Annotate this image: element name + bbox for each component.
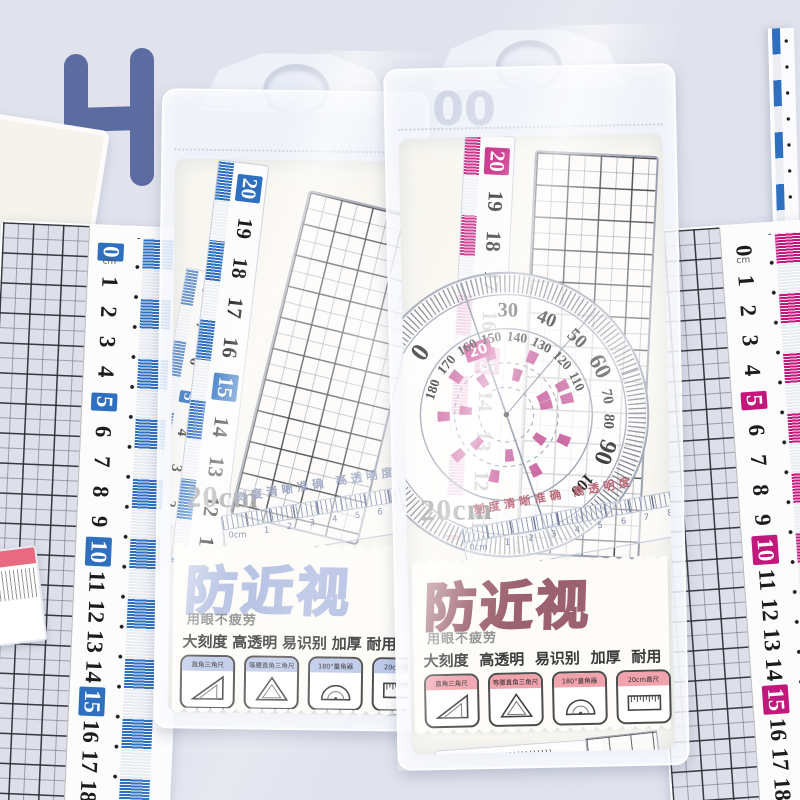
tick-label: 0cm <box>228 530 247 540</box>
svg-text:140: 140 <box>506 328 528 346</box>
ruler-number: 15 <box>752 683 798 716</box>
tick-label: 8 <box>667 508 673 518</box>
slogan-text: 用眼不疲劳 <box>187 609 257 629</box>
ruler-unit: cm <box>102 257 116 268</box>
protractor-icon <box>554 687 606 722</box>
tick-label: 2 <box>528 533 534 543</box>
svg-text:70: 70 <box>598 388 616 406</box>
ruler-number: 14 <box>70 656 115 688</box>
feature-item: 耐用 <box>366 633 396 654</box>
ruler-number: 1 <box>87 266 132 298</box>
item-box: 等腰直角三角尺 <box>488 672 544 727</box>
ruler-unit: cm <box>736 255 750 266</box>
item-box: 180°量角器 <box>308 656 364 711</box>
item-label: 直角三角尺 <box>426 675 477 690</box>
ruler-number: 11 <box>74 566 119 598</box>
backing-card: 8765432 20191817161514131211 20cm 刻度清晰准确… <box>167 158 415 715</box>
ruler-number: 18 <box>220 246 258 290</box>
ruler-number: 3 <box>727 324 773 357</box>
feature-item: 易识别 <box>535 647 580 669</box>
tick-label: 7 <box>644 513 650 523</box>
ruler-number: 7 <box>79 446 124 478</box>
ruler-number: 19 <box>477 180 513 222</box>
red-label-bar <box>0 547 36 569</box>
feature-item: 加厚 <box>332 633 362 654</box>
item-label: 20cm直尺 <box>618 671 669 686</box>
slogan-text: 用眼不疲劳 <box>427 627 497 647</box>
item-label: 180°量角器 <box>554 673 605 688</box>
item-box: 20cm直尺 <box>616 669 672 724</box>
item-box: 直角三角尺 <box>180 654 236 709</box>
feature-item: 高透明 <box>479 648 524 670</box>
feature-item: 耐用 <box>631 645 661 667</box>
ruler-number: 1 <box>723 264 769 297</box>
right-triangle-icon <box>182 670 233 705</box>
ruler-number: 11 <box>744 563 790 596</box>
ruler-number: 5 <box>82 386 127 418</box>
plastic-bag: 20191817161514131211 20 <box>383 63 690 771</box>
feature-item: 大刻度 <box>182 630 227 652</box>
ruler-number: 17 <box>66 745 111 777</box>
tick-label: 0cm <box>469 543 488 554</box>
ruler-icon <box>618 685 670 720</box>
feature-item: 加厚 <box>590 646 620 668</box>
heat-seal-line <box>174 148 417 153</box>
svg-text:80: 80 <box>600 413 617 429</box>
ruler-number: 2 <box>86 296 131 328</box>
item-label: 等腰直角三角尺 <box>490 674 541 689</box>
isosceles-triangle-icon <box>246 671 297 706</box>
ruler-number: 16 <box>67 715 112 747</box>
right-triangle-icon <box>426 689 478 724</box>
tick-label: 3 <box>551 529 557 539</box>
protractor-icon <box>310 672 361 707</box>
tick-label: 5 <box>354 511 360 521</box>
contents-icon-row: 直角三角尺 等腰直角三角尺 180°量角器 <box>180 654 416 711</box>
ruler-number: 18 <box>65 775 110 800</box>
item-box: 180°量角器 <box>552 671 608 726</box>
tick-label: 2 <box>286 522 292 532</box>
ruler-number: 14 <box>750 653 796 686</box>
tick-label: 5 <box>598 521 604 531</box>
product-photo-scene: 00 0123456789101112131415161718 cm <box>0 0 800 800</box>
ruler-number: 18 <box>758 773 800 800</box>
feature-list: 大刻度高透明易识别加厚耐用 <box>182 630 396 654</box>
item-box: 直角三角尺 <box>424 673 480 728</box>
ruler-number: 6 <box>80 416 125 448</box>
contents-icon-row: 直角三角尺 等腰直角三角尺 180°量角器 <box>424 669 672 728</box>
tick-label: 6 <box>377 507 383 517</box>
item-label: 直角三角尺 <box>182 656 233 671</box>
tick-label: 4 <box>574 525 580 535</box>
backing-card: 20191817161514131211 20 <box>399 133 676 754</box>
ruler-number: 12 <box>73 596 118 628</box>
feature-list: 大刻度高透明易识别加厚耐用 <box>423 645 661 671</box>
ruler-number: 15 <box>205 365 243 409</box>
ruler-number: 2 <box>725 294 771 327</box>
ruler-number: 5 <box>731 384 777 417</box>
grid-piece <box>585 730 662 754</box>
ruler-number: 16 <box>754 713 800 746</box>
ruler-number: 16 <box>210 325 248 369</box>
ruler-number: 17 <box>215 285 253 329</box>
ruler-number: 14 <box>201 405 239 449</box>
tick-label: 4 <box>332 515 338 525</box>
item-box: 等腰直角三角尺 <box>244 655 300 710</box>
item-label: 180°量角器 <box>310 658 361 673</box>
ruler-number: 9 <box>77 506 122 538</box>
tick-label: 1 <box>505 538 511 548</box>
ruler-number: 15 <box>69 685 114 717</box>
heat-seal-line <box>398 123 663 131</box>
ruler-number: 13 <box>748 623 794 656</box>
ruler-number: 19 <box>224 206 262 250</box>
feature-item: 易识别 <box>282 632 327 654</box>
ruler-number: 13 <box>71 626 116 658</box>
ruler-number: 6 <box>733 414 779 447</box>
product-info-insert: 防近视 用眼不疲劳 大刻度高透明易识别加厚耐用 直角三角尺 等腰直角三角尺 <box>172 546 406 711</box>
ruler-number: 20 <box>478 140 514 182</box>
tick-label: 1 <box>264 526 270 536</box>
ruler-number: 3 <box>84 326 129 358</box>
tick-label: 3 <box>309 518 315 528</box>
ruler-number: 4 <box>729 354 775 387</box>
ruler-number: 8 <box>738 474 784 507</box>
ruler-number: 17 <box>756 743 800 776</box>
tick-label: 6 <box>621 517 627 527</box>
svg-text:30: 30 <box>497 299 518 321</box>
ruler-number: 12 <box>746 593 792 626</box>
ruler-number: 8 <box>78 476 123 508</box>
ruler-number: 4 <box>83 356 128 388</box>
ruler-number: 9 <box>740 504 786 537</box>
product-info-insert: 防近视 用眼不疲劳 大刻度高透明易识别加厚耐用 直角三角尺 等腰直角三角尺 <box>411 559 670 730</box>
ruler-set-package-pink: 20191817161514131211 20 <box>382 23 689 771</box>
ruler-number: 10 <box>75 536 120 568</box>
ruler-ticks <box>482 749 554 755</box>
feature-item: 高透明 <box>232 631 277 653</box>
item-label: 等腰直角三角尺 <box>246 657 297 672</box>
ruler-number: 7 <box>735 444 781 477</box>
feature-item: 大刻度 <box>423 649 468 671</box>
tick-strip <box>0 567 40 603</box>
ruler-zero-end: 0 cm <box>434 738 606 754</box>
ruler-number: 10 <box>742 533 788 566</box>
isosceles-triangle-icon <box>490 688 542 723</box>
ruler-number: 20 <box>229 166 267 210</box>
